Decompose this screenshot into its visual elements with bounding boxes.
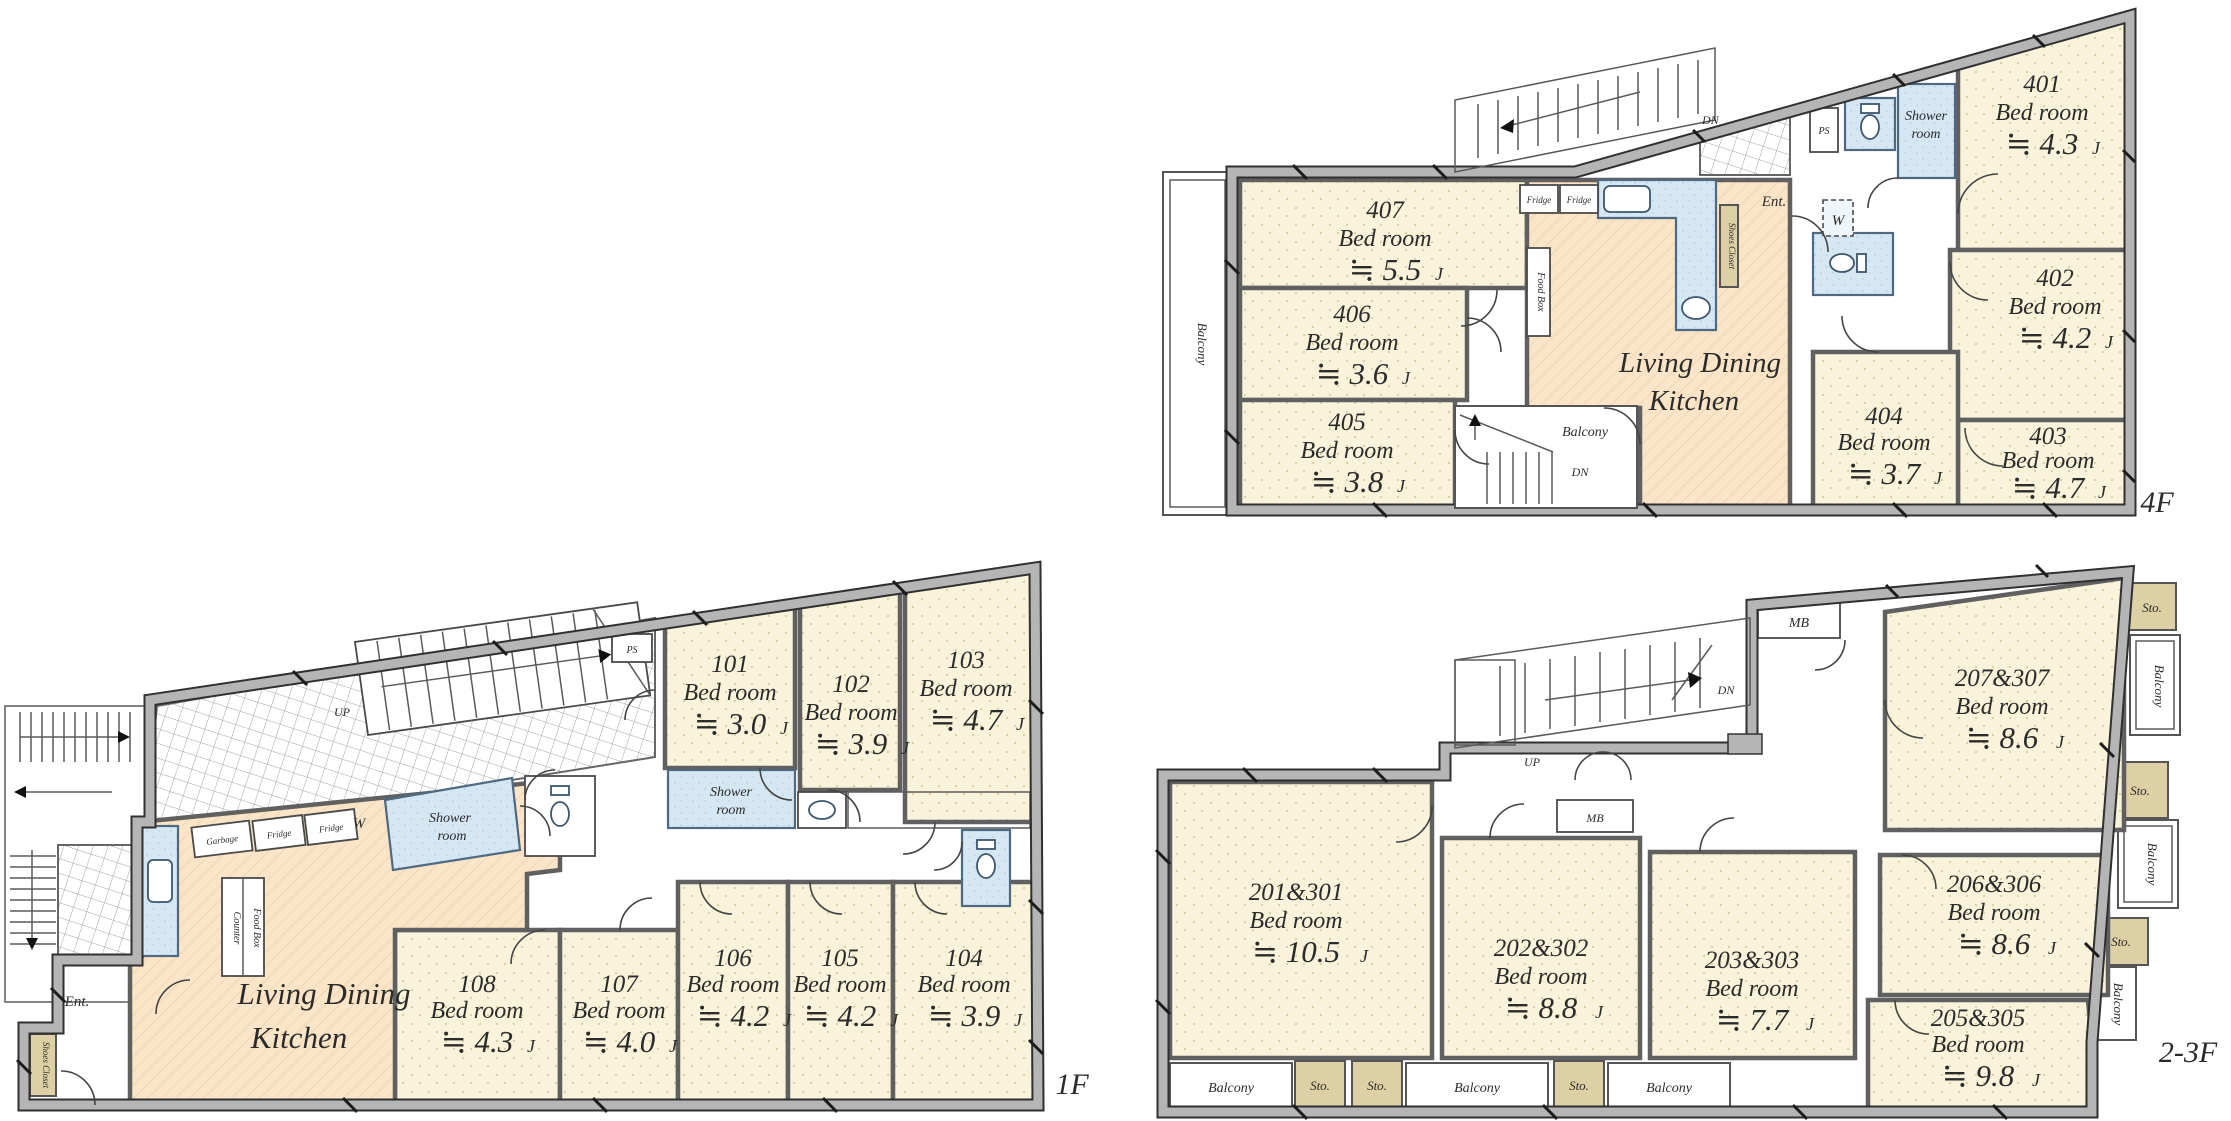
ldk-4f-line1: Living Dining [1618, 347, 1781, 379]
fridge-box-1f-1: Fridge [252, 815, 305, 851]
kitchen-sink-icon-1f [148, 860, 172, 902]
room-107-number: 107 [600, 971, 639, 998]
shower-1f-center-line1: Shower [429, 811, 472, 826]
shoes-closet-1f-label: Shoes Closet [41, 1042, 51, 1089]
room-104-number: 104 [945, 945, 983, 972]
ldk-1f-line1: Living Dining [236, 976, 410, 1011]
room-205-unit: J [2032, 1070, 2041, 1090]
ps-1f-label: PS [625, 645, 637, 656]
shower-1f-center-line2: room [437, 829, 466, 844]
balcony-4f-center-label: Balcony [1562, 425, 1609, 440]
room-402-number: 402 [2036, 265, 2074, 292]
room-102-number: 102 [832, 671, 870, 698]
room-205-number: 205&305 [1931, 1005, 2025, 1032]
shower-1f-right-line1: Shower [710, 785, 753, 800]
floor-label-1f: 1F [1055, 1068, 1089, 1101]
room-201-number: 201&301 [1249, 879, 1343, 906]
room-403-area-label: ≒ 4.7 [2012, 470, 2086, 505]
room-205-area-label: ≒ 9.8 [1942, 1058, 2015, 1093]
balcony-23f-right-3-label: Balcony [2111, 983, 2126, 1026]
ent-1f-label: Ent. [64, 994, 90, 1010]
room-206-area-label: ≒ 8.6 [1958, 926, 2031, 961]
up-23f-label: UP [1524, 755, 1541, 769]
washer-1f-label: W [353, 816, 367, 832]
room-103-area-label: ≒ 4.7 [930, 702, 1004, 737]
room-201-type: Bed room [1249, 908, 1342, 934]
room-405-unit: J [1397, 476, 1406, 496]
room-103-number: 103 [947, 647, 985, 674]
room-107-area-label: ≒ 4.0 [583, 1024, 656, 1059]
room-407-type: Bed room [1338, 226, 1431, 252]
room-101-type: Bed room [683, 680, 776, 706]
room-401-number: 401 [2023, 71, 2061, 98]
room-206-type: Bed room [1947, 900, 2040, 926]
room-106-number: 106 [714, 945, 752, 972]
room-101-number: 101 [711, 651, 749, 678]
room-404-number: 404 [1865, 403, 1903, 430]
room-401-type: Bed room [1995, 100, 2088, 126]
balcony-23f-bottom-3-label: Balcony [1646, 1081, 1693, 1096]
room-406-type: Bed room [1305, 330, 1398, 356]
room-105-area-label: ≒ 4.2 [804, 998, 876, 1033]
staircase-23f [1455, 618, 1762, 754]
dn-23f-label: DN [1717, 683, 1736, 697]
floor-plan-svg: Balcony 407 Bed room ≒ 5.5 J 406 Bed roo… [0, 0, 2231, 1121]
shower-1f-right-line2: room [716, 803, 745, 818]
toilet-icon-4f-lower [1830, 254, 1866, 272]
room-207-type: Bed room [1955, 694, 2048, 720]
room-105-number: 105 [821, 945, 859, 972]
room-103-unit: J [1016, 714, 1025, 734]
sto-23f-right-3-label: Sto. [2111, 934, 2131, 949]
kitchen-sink-icon-4f [1604, 186, 1650, 212]
room-407-unit: J [1435, 264, 1444, 284]
room-207-number: 207&307 [1955, 665, 2051, 692]
room-106-unit: J [783, 1010, 792, 1030]
room-103-type: Bed room [919, 676, 1012, 702]
room-404-area-label: ≒ 3.7 [1848, 456, 1922, 491]
room-108-area-label: ≒ 4.3 [441, 1024, 513, 1059]
wash-basin-icon-1f [809, 801, 835, 819]
balcony-4f-left-label: Balcony [1195, 323, 1210, 366]
room-105-unit: J [890, 1010, 899, 1030]
room-104-area-label: ≒ 3.9 [928, 998, 1000, 1033]
room-108-unit: J [527, 1036, 536, 1056]
washer-4f-label: W [1832, 213, 1846, 229]
room-406-area-label: ≒ 3.6 [1316, 356, 1389, 391]
room-203-type: Bed room [1705, 976, 1798, 1002]
fridge-4f-label-2: Fridge [1566, 195, 1592, 205]
room-206-number: 206&306 [1947, 871, 2042, 898]
room-402-area-label: ≒ 4.2 [2019, 320, 2091, 355]
room-106-area-label: ≒ 4.2 [697, 998, 769, 1033]
room-206-unit: J [2048, 938, 2057, 958]
shoes-closet-4f-label: Shoes Closet [1727, 223, 1737, 270]
sto-23f-bottom-3-label: Sto. [1569, 1078, 1589, 1093]
mb-23f-center-label: MB [1585, 811, 1604, 825]
room-405-number: 405 [1328, 409, 1366, 436]
room-401-unit: J [2092, 138, 2101, 158]
sto-23f-right-2-label: Sto. [2130, 783, 2150, 798]
room-207-area-label: ≒ 8.6 [1966, 720, 2039, 755]
room-101-area-label: ≒ 3.0 [694, 706, 767, 741]
room-202-area-label: ≒ 8.8 [1505, 990, 1578, 1025]
floor-plan-sheet: Balcony 407 Bed room ≒ 5.5 J 406 Bed roo… [0, 0, 2231, 1121]
ps-4f-label: PS [1817, 126, 1829, 137]
svg-text:Counter: Counter [231, 912, 242, 945]
sto-23f-right-1-label: Sto. [2142, 600, 2162, 615]
room-406-number: 406 [1333, 301, 1371, 328]
toilet-icon-1f-right [977, 840, 995, 878]
room-407-area-label: ≒ 5.5 [1349, 252, 1421, 287]
ldk-1f-line2: Kitchen [250, 1020, 347, 1055]
sto-23f-bottom-1-label: Sto. [1310, 1078, 1330, 1093]
room-102-area-label: ≒ 3.9 [815, 726, 887, 761]
dn-4f-top-label: DN [1701, 113, 1720, 127]
room-108-type: Bed room [430, 998, 523, 1024]
shower-4f-line1: Shower [1905, 109, 1948, 124]
floor-plan-2-3f: 201&301 Bed room ≒ 10.5 J 202&302 Bed ro… [1156, 565, 2218, 1119]
room-406-unit: J [1402, 368, 1411, 388]
room-402-unit: J [2105, 332, 2114, 352]
toilet-icon-4f-upper [1861, 104, 1879, 139]
balcony-dn-stair-4f [1455, 406, 1637, 508]
room-407-number: 407 [1366, 197, 1405, 224]
up-1f-label: UP [334, 705, 351, 719]
room-105-type: Bed room [793, 972, 886, 998]
svg-text:Food Box: Food Box [251, 907, 262, 948]
room-402-type: Bed room [2008, 294, 2101, 320]
fridge-box-1f-2: Fridge [304, 809, 357, 845]
balcony-23f-right-2-label: Balcony [2145, 843, 2160, 886]
dn-4f-center-label: DN [1571, 465, 1590, 479]
room-201-area-label: ≒ 10.5 [1252, 934, 1340, 969]
balcony-23f-right-1-label: Balcony [2152, 665, 2167, 708]
sto-23f-bottom-2-label: Sto. [1367, 1078, 1387, 1093]
room-207-unit: J [2056, 732, 2065, 752]
floor-label-2-3f: 2-3F [2159, 1036, 2218, 1069]
ent-4f-label: Ent. [1761, 194, 1787, 210]
wash-basin-icon-4f [1682, 297, 1710, 319]
room-202-type: Bed room [1494, 964, 1587, 990]
room-108-number: 108 [458, 971, 496, 998]
room-405-area-label: ≒ 3.8 [1311, 464, 1384, 499]
room-104-unit: J [1014, 1010, 1023, 1030]
floor-label-4f: 4F [2140, 486, 2174, 519]
room-405-type: Bed room [1300, 438, 1393, 464]
room-401-area-label: ≒ 4.3 [2006, 126, 2078, 161]
staircase-4f-top [1455, 48, 1715, 172]
room-403-number: 403 [2029, 423, 2067, 450]
room-106-type: Bed room [686, 972, 779, 998]
ldk-4f-line2: Kitchen [1648, 385, 1739, 417]
room-202-unit: J [1595, 1002, 1604, 1022]
room-403-unit: J [2098, 482, 2107, 502]
shower-4f-line2: room [1911, 127, 1940, 142]
room-404-type: Bed room [1837, 430, 1930, 456]
toilet-icon-1f-center [551, 786, 569, 826]
room-104-type: Bed room [917, 972, 1010, 998]
room-107-unit: J [669, 1036, 678, 1056]
counter-island-1f: Counter Food Box [222, 878, 264, 976]
floor-plan-4f: Balcony 407 Bed room ≒ 5.5 J 406 Bed roo… [1163, 16, 2174, 519]
room-203-number: 203&303 [1705, 947, 1799, 974]
floor-plan-1f: Garbage Fridge Fridge Counter Food Box [5, 568, 1089, 1112]
room-107-type: Bed room [572, 998, 665, 1024]
room-202-number: 202&302 [1494, 935, 1588, 962]
balcony-23f-bottom-2-label: Balcony [1454, 1081, 1501, 1096]
room-102-unit: J [901, 738, 910, 758]
balcony-23f-bottom-1-label: Balcony [1208, 1081, 1255, 1096]
mb-23f-top-label: MB [1788, 616, 1810, 631]
room-203-unit: J [1806, 1014, 1815, 1034]
fridge-4f-label-1: Fridge [1526, 195, 1552, 205]
food-box-4f-label: Food Box [1535, 271, 1546, 312]
room-101-unit: J [780, 718, 789, 738]
room-404-unit: J [1934, 468, 1943, 488]
room-201-unit: J [1360, 946, 1369, 966]
garbage-box-1f: Garbage [191, 821, 252, 858]
room-205-type: Bed room [1931, 1032, 2024, 1058]
room-203-area-label: ≒ 7.7 [1716, 1002, 1790, 1037]
room-102-type: Bed room [804, 700, 897, 726]
